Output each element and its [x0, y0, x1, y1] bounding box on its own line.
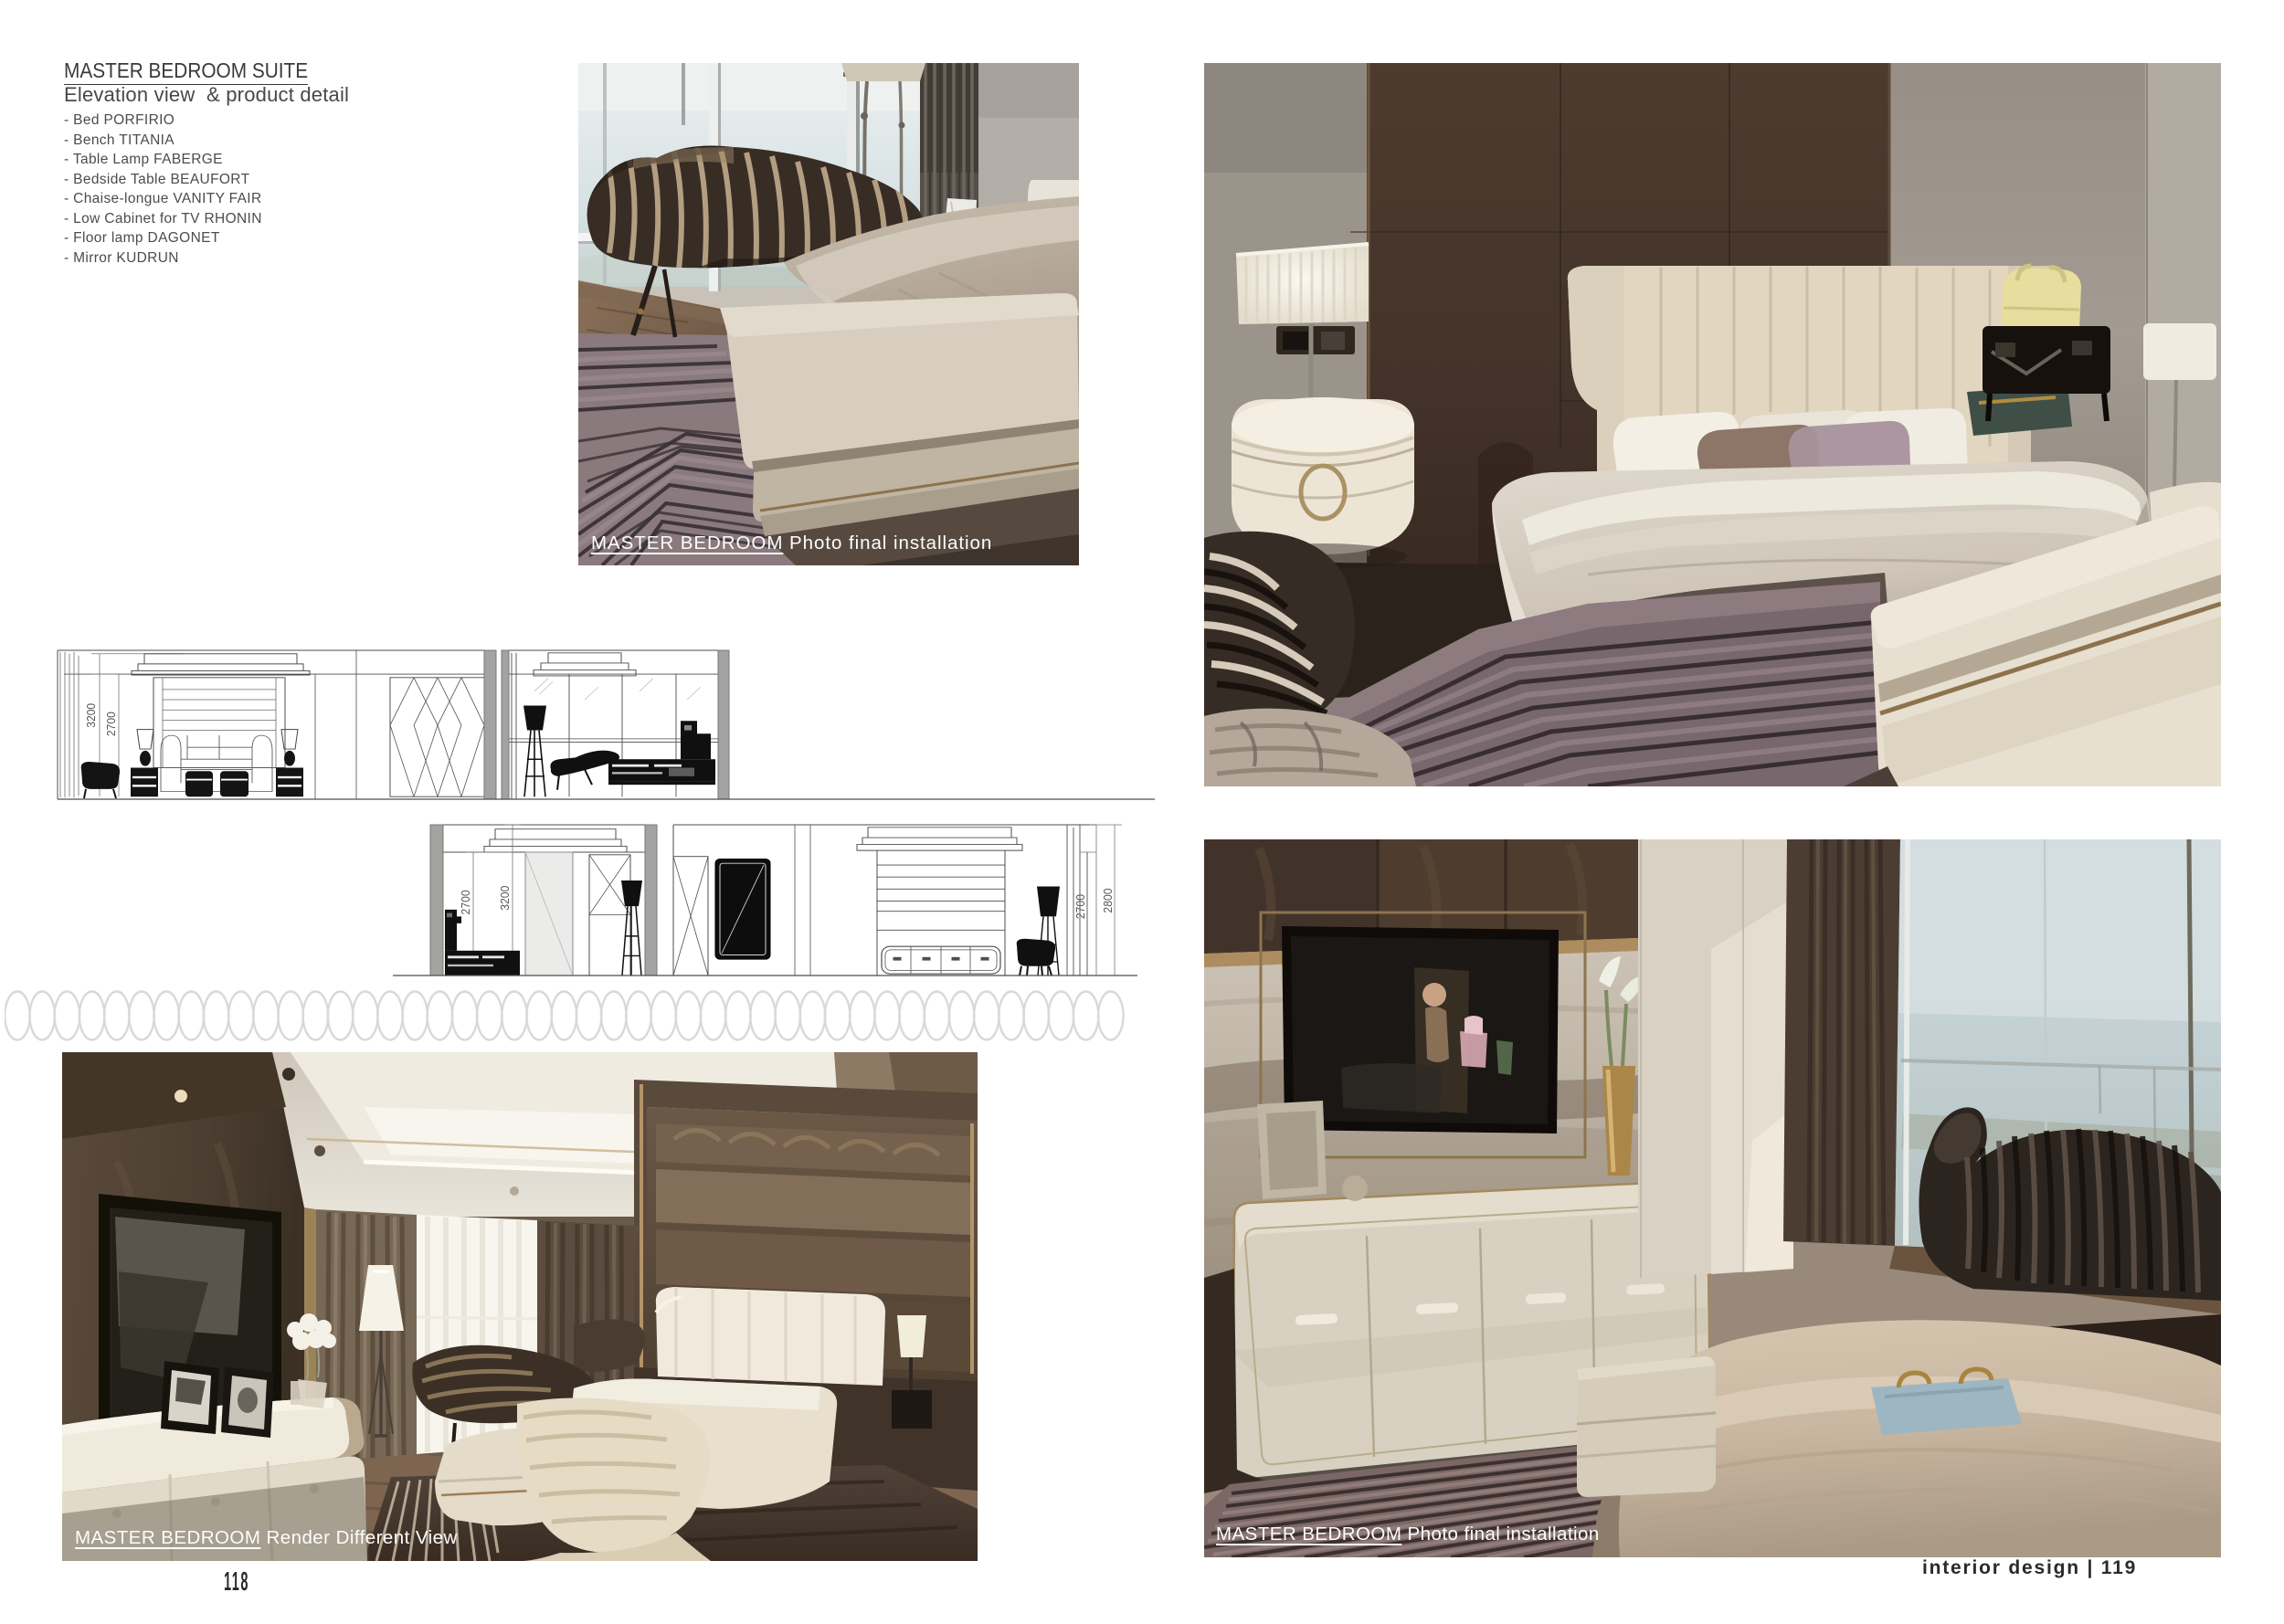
svg-text:2700: 2700: [105, 712, 118, 736]
svg-text:2700: 2700: [460, 890, 472, 914]
svg-text:3200: 3200: [499, 886, 512, 911]
svg-text:2700: 2700: [1074, 894, 1087, 919]
svg-text:2800: 2800: [1102, 888, 1115, 912]
svg-text:3200: 3200: [85, 703, 98, 728]
